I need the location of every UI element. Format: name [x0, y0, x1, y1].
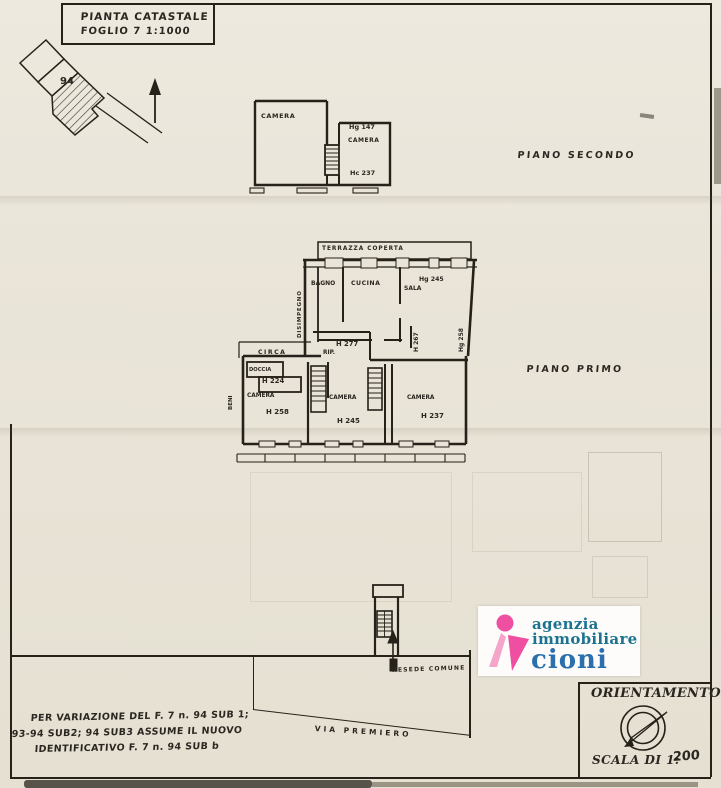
area-label-resede-comune: RESEDE COMUNE [392, 664, 466, 674]
pencil-ghost-rect [592, 556, 648, 598]
height-note-vertical: H 267 [413, 332, 420, 352]
room-label-doccia: DOCCIA [249, 367, 271, 373]
road-lines [96, 93, 162, 143]
courtyard-left-boundary [253, 657, 254, 710]
height-note: Hc 237 [350, 169, 375, 177]
page-frame-right [710, 3, 712, 777]
parcel-sketch [12, 33, 167, 145]
room-label-camera: CAMERA [247, 393, 274, 399]
height-note: H 277 [336, 340, 358, 348]
room-label-camera: CAMERA [348, 137, 379, 144]
compass-icon [614, 703, 672, 753]
room-label-sala: SALA [404, 285, 421, 292]
height-note-vertical: Hg 258 [458, 328, 465, 352]
scan-edge [24, 780, 372, 788]
scan-artifact [714, 88, 721, 184]
cadastral-plan-sheet: PIANTA CATASTALE FOGLIO 7 1:1000 94 [0, 0, 721, 788]
page-frame-left [10, 424, 12, 777]
height-note: H 258 [266, 408, 289, 416]
scale-value: 200 [672, 748, 700, 765]
agency-logo: agenzia immobiliare cioni [478, 606, 640, 676]
room-label-camera: CAMERA [407, 395, 434, 401]
scale-label: SCALA DI 1: [592, 753, 680, 767]
room-label-rip: RIP. [323, 350, 335, 356]
height-note: H 237 [421, 412, 444, 420]
room-label-cucina: CUCINA [351, 280, 380, 287]
agency-logo-icon [484, 611, 530, 671]
courtyard-right-boundary [469, 650, 471, 738]
parcel-number: 94 [60, 76, 74, 87]
room-label-disimpegno: DISIMPEGNO [297, 290, 303, 338]
orientation-box-left [578, 682, 580, 777]
orientation-title: ORIENTAMENTO [591, 686, 721, 701]
room-label-camera: CAMERA [329, 395, 356, 401]
side-label-vertical: BENI [228, 395, 234, 410]
pencil-ghost-rect [472, 472, 582, 552]
room-label-bagno: BAGNO [311, 280, 335, 287]
height-note: H 224 [262, 377, 284, 385]
orientation-box-top [578, 682, 710, 684]
scan-edge [372, 782, 698, 787]
variation-note-line3: IDENTIFICATIVO F. 7 n. 94 SUB b [34, 741, 219, 755]
room-label-terrazza: TERRAZZA COPERTA [322, 246, 404, 252]
height-note: Hg 245 [419, 276, 444, 283]
north-arrow-icon [149, 78, 161, 123]
floor-label-piano-secondo: PIANO SECONDO [517, 150, 636, 161]
area-label-circa: CIRCA [258, 349, 286, 356]
room-label-camera: CAMERA [261, 112, 295, 120]
staircase-icon [325, 145, 339, 175]
scan-artifact [640, 113, 654, 119]
floor-label-piano-primo: PIANO PRIMO [526, 364, 624, 375]
height-note: H 245 [337, 417, 360, 425]
agency-name-line3: cioni [531, 646, 608, 674]
staircase-icon [368, 368, 382, 410]
pencil-ghost-rect [588, 452, 662, 542]
staircase-icon [311, 366, 326, 412]
map-title: PIANTA CATASTALE [80, 11, 209, 23]
variation-note-line2: 93-94 SUB2; 94 SUB3 ASSUME IL NUOVO [11, 725, 242, 740]
variation-note-line1: PER VARIAZIONE DEL F. 7 n. 94 SUB 1; [30, 709, 249, 724]
height-note: Hg 147 [349, 123, 375, 131]
piano-secondo-plan [248, 92, 398, 200]
page-frame-bottom [10, 777, 711, 779]
